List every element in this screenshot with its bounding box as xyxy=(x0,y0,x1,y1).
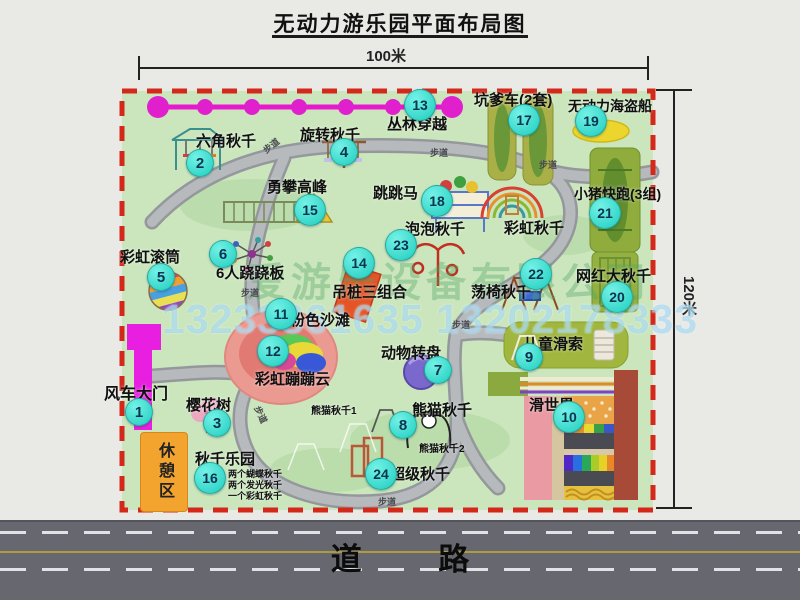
attraction-badge-18: 18 xyxy=(421,185,453,217)
attraction-badge-15: 15 xyxy=(294,194,326,226)
attraction-badge-20: 20 xyxy=(601,281,633,313)
road: 道 路 xyxy=(0,520,800,600)
footpath-label: 步道 xyxy=(452,318,470,331)
attraction-label-15: 勇攀高峰 xyxy=(267,176,327,197)
footpath-label: 步道 xyxy=(241,286,259,299)
footpath-label: 步道 xyxy=(378,495,396,508)
swing-park-note-3: 一个彩虹秋千 xyxy=(228,489,282,502)
dimension-top-label: 100米 xyxy=(366,45,406,66)
attraction-badge-21: 21 xyxy=(589,197,621,229)
attraction-badge-13: 13 xyxy=(404,89,436,121)
attraction-label-5: 彩虹滚筒 xyxy=(120,246,180,267)
panda-swing1-label: 熊猫秋千1 xyxy=(311,402,357,417)
attraction-badge-1: 1 xyxy=(125,398,153,426)
attraction-badge-17: 17 xyxy=(508,104,540,136)
attraction-label-12: 彩虹蹦蹦云 xyxy=(255,368,330,389)
attraction-label-11: 粉色沙滩 xyxy=(290,309,350,330)
attraction-label-2: 六角秋千 xyxy=(196,130,256,151)
attraction-badge-22: 22 xyxy=(520,258,552,290)
attraction-label-8: 熊猫秋千 xyxy=(412,399,472,420)
panda-swing2-label: 熊猫秋千2 xyxy=(419,440,465,455)
attraction-label-21: 小猪快跑(3组) xyxy=(574,184,661,204)
footpath-label: 步道 xyxy=(539,158,557,171)
attraction-badge-9: 9 xyxy=(515,343,543,371)
attraction-badge-5: 5 xyxy=(147,263,175,291)
attraction-label-14: 吊桩三组合 xyxy=(332,281,407,302)
rest-area-box: 休憩区 xyxy=(140,432,188,512)
attraction-badge-2: 2 xyxy=(186,149,214,177)
attraction-badge-11: 11 xyxy=(265,298,297,330)
page-title: 无动力游乐园平面布局图 xyxy=(0,8,800,38)
road-label: 道 路 xyxy=(0,534,800,579)
attraction-badge-14: 14 xyxy=(343,247,375,279)
title-underline xyxy=(272,35,528,38)
attraction-badge-3: 3 xyxy=(203,409,231,437)
attraction-badge-19: 19 xyxy=(575,105,607,137)
attraction-label-22: 荡椅秋千 xyxy=(471,281,531,302)
attraction-badge-7: 7 xyxy=(424,356,452,384)
attraction-badge-10: 10 xyxy=(553,401,585,433)
attraction-label-18: 跳跳马 xyxy=(373,182,418,203)
attraction-badge-23: 23 xyxy=(385,229,417,261)
park-plan-canvas: 无动力游乐园平面布局图 100米 120米 爱游乐设备有限公司 13233861… xyxy=(0,0,800,600)
attraction-badge-4: 4 xyxy=(330,138,358,166)
attraction-label-24: 超级秋千 xyxy=(390,463,450,484)
attraction-badge-12: 12 xyxy=(257,335,289,367)
attraction-badge-8: 8 xyxy=(389,411,417,439)
rainbow-swing-label: 彩虹秋千 xyxy=(504,217,564,238)
footpath-label: 步道 xyxy=(430,146,448,159)
attraction-badge-24: 24 xyxy=(365,458,397,490)
attraction-badge-6: 6 xyxy=(209,240,237,268)
attraction-badge-16: 16 xyxy=(194,462,226,494)
